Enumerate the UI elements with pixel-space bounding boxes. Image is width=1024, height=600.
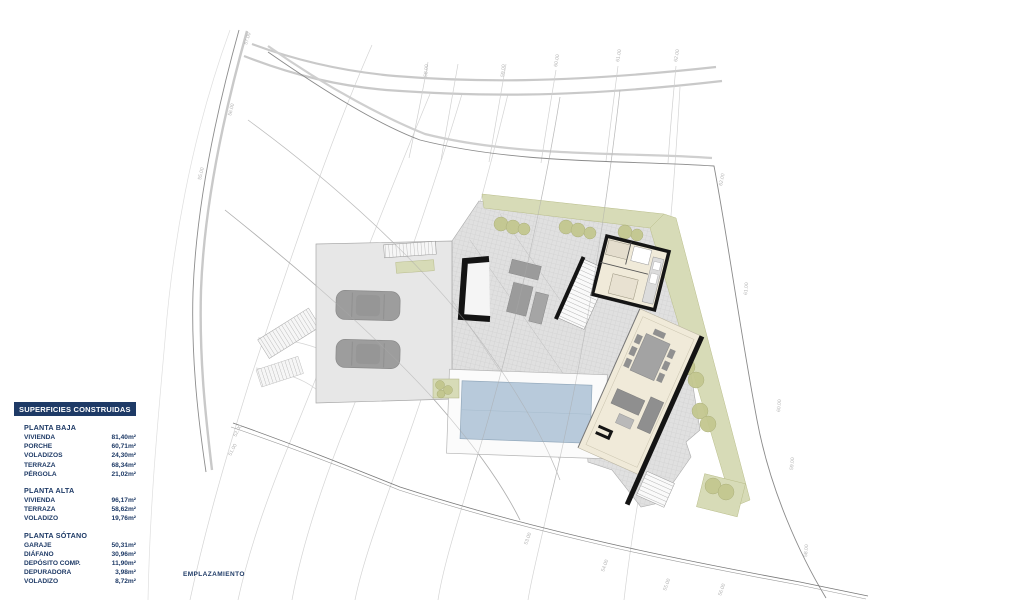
contour-elevation-label: 53.00 [523, 532, 533, 546]
legend-row: VOLADIZO 19,76m² [14, 514, 136, 523]
legend-section: PLANTA ALTA VIVIENDA 96,17m² TERRAZA 58,… [14, 486, 136, 524]
legend-sections: PLANTA BAJA VIVIENDA 81,40m² PORCHE 60,7… [14, 423, 136, 587]
legend-row-label: DEPURADORA [24, 568, 71, 577]
legend-row: VOLADIZOS 24,30m² [14, 451, 136, 460]
legend-row-value: 30,96m² [111, 550, 136, 559]
site-plan-drawing: 57.0056.0055.0052.0051.0058.0059.0060.00… [0, 0, 1024, 600]
contour-elevation-label: 59.00 [789, 457, 796, 470]
legend-row: TERRAZA 68,34m² [14, 461, 136, 470]
legend-row: VIVIENDA 96,17m² [14, 496, 136, 505]
legend-row: TERRAZA 58,62m² [14, 505, 136, 514]
legend-row-label: VOLADIZO [24, 577, 58, 586]
legend-row-label: VIVIENDA [24, 433, 55, 442]
contour-elevation-label: 58.00 [423, 64, 430, 77]
contour-elevation-label: 62.00 [718, 173, 727, 187]
legend-section: PLANTA SÓTANO GARAJE 50,31m² DIÁFANO 30,… [14, 531, 136, 587]
legend-row-value: 3,98m² [115, 568, 136, 577]
legend-row-label: VOLADIZO [24, 514, 58, 523]
surface-areas-legend: SUPERFICIES CONSTRUIDAS PLANTA BAJA VIVI… [14, 402, 136, 587]
legend-row-label: VOLADIZOS [24, 451, 62, 460]
legend-row: GARAJE 50,31m² [14, 541, 136, 550]
contour-elevation-label: 56.00 [717, 583, 727, 597]
car-2 [336, 339, 401, 369]
legend-row: DEPÓSITO COMP. 11,90m² [14, 559, 136, 568]
legend-row: PÉRGOLA 21,02m² [14, 470, 136, 479]
contour-elevation-label: 54.00 [600, 559, 610, 573]
legend-row-value: 81,40m² [111, 433, 136, 442]
contour-elevation-label: 62.00 [673, 49, 681, 63]
legend-row-value: 21,02m² [111, 470, 136, 479]
legend-row-label: DEPÓSITO COMP. [24, 559, 81, 568]
legend-row: PORCHE 60,71m² [14, 442, 136, 451]
contour-elevation-label: 59.00 [500, 64, 507, 77]
legend-row-value: 60,71m² [111, 442, 136, 451]
kitchen-unit [592, 236, 669, 310]
garage [316, 241, 452, 403]
ramp-stairs [258, 308, 321, 358]
legend-row-value: 50,31m² [111, 541, 136, 550]
legend-section: PLANTA BAJA VIVIENDA 81,40m² PORCHE 60,7… [14, 423, 136, 479]
plan-caption: EMPLAZAMIENTO [183, 571, 245, 578]
legend-row: VOLADIZO 8,72m² [14, 577, 136, 586]
contour-elevation-label: 60.00 [553, 54, 561, 68]
legend-row-value: 58,62m² [111, 505, 136, 514]
legend-row-label: GARAJE [24, 541, 51, 550]
built-site [225, 90, 750, 520]
site-plan-sheet: 57.0056.0055.0052.0051.0058.0059.0060.00… [0, 0, 1024, 600]
legend-row: DEPURADORA 3,98m² [14, 568, 136, 577]
legend-row-label: PÉRGOLA [24, 470, 57, 479]
contour-elevation-label: 61.00 [615, 49, 623, 63]
legend-row-value: 19,76m² [111, 514, 136, 523]
legend-row-label: DIÁFANO [24, 550, 54, 559]
legend-row-value: 68,34m² [111, 461, 136, 470]
legend-row-label: TERRAZA [24, 505, 56, 514]
legend-row-value: 11,90m² [112, 559, 136, 568]
pool-planter [433, 379, 459, 398]
car-1 [336, 290, 401, 321]
legend-section-title: PLANTA ALTA [14, 486, 136, 495]
legend-row-label: VIVIENDA [24, 496, 55, 505]
contour-elevation-label: 55.00 [662, 578, 672, 592]
contour-elevation-label: 55.00 [197, 167, 206, 181]
contour-elevation-label: 57.00 [243, 32, 252, 46]
contour-elevation-label: 60.00 [776, 399, 783, 412]
legend-row-value: 8,72m² [115, 577, 136, 586]
legend-header: SUPERFICIES CONSTRUIDAS [14, 402, 136, 416]
legend-row-label: PORCHE [24, 442, 52, 451]
legend-section-title: PLANTA SÓTANO [14, 531, 136, 540]
contour-elevation-label: 58.00 [803, 544, 810, 557]
legend-row: VIVIENDA 81,40m² [14, 433, 136, 442]
legend-row-value: 96,17m² [111, 496, 136, 505]
legend-row-value: 24,30m² [111, 451, 136, 460]
legend-section-title: PLANTA BAJA [14, 423, 136, 432]
legend-row-label: TERRAZA [24, 461, 56, 470]
contour-elevation-label: 51.00 [227, 443, 238, 457]
contour-elevation-label: 61.00 [743, 282, 750, 295]
ramp-stairs-lower [256, 356, 303, 387]
terrace-c-wall [461, 259, 490, 319]
legend-row: DIÁFANO 30,96m² [14, 550, 136, 559]
